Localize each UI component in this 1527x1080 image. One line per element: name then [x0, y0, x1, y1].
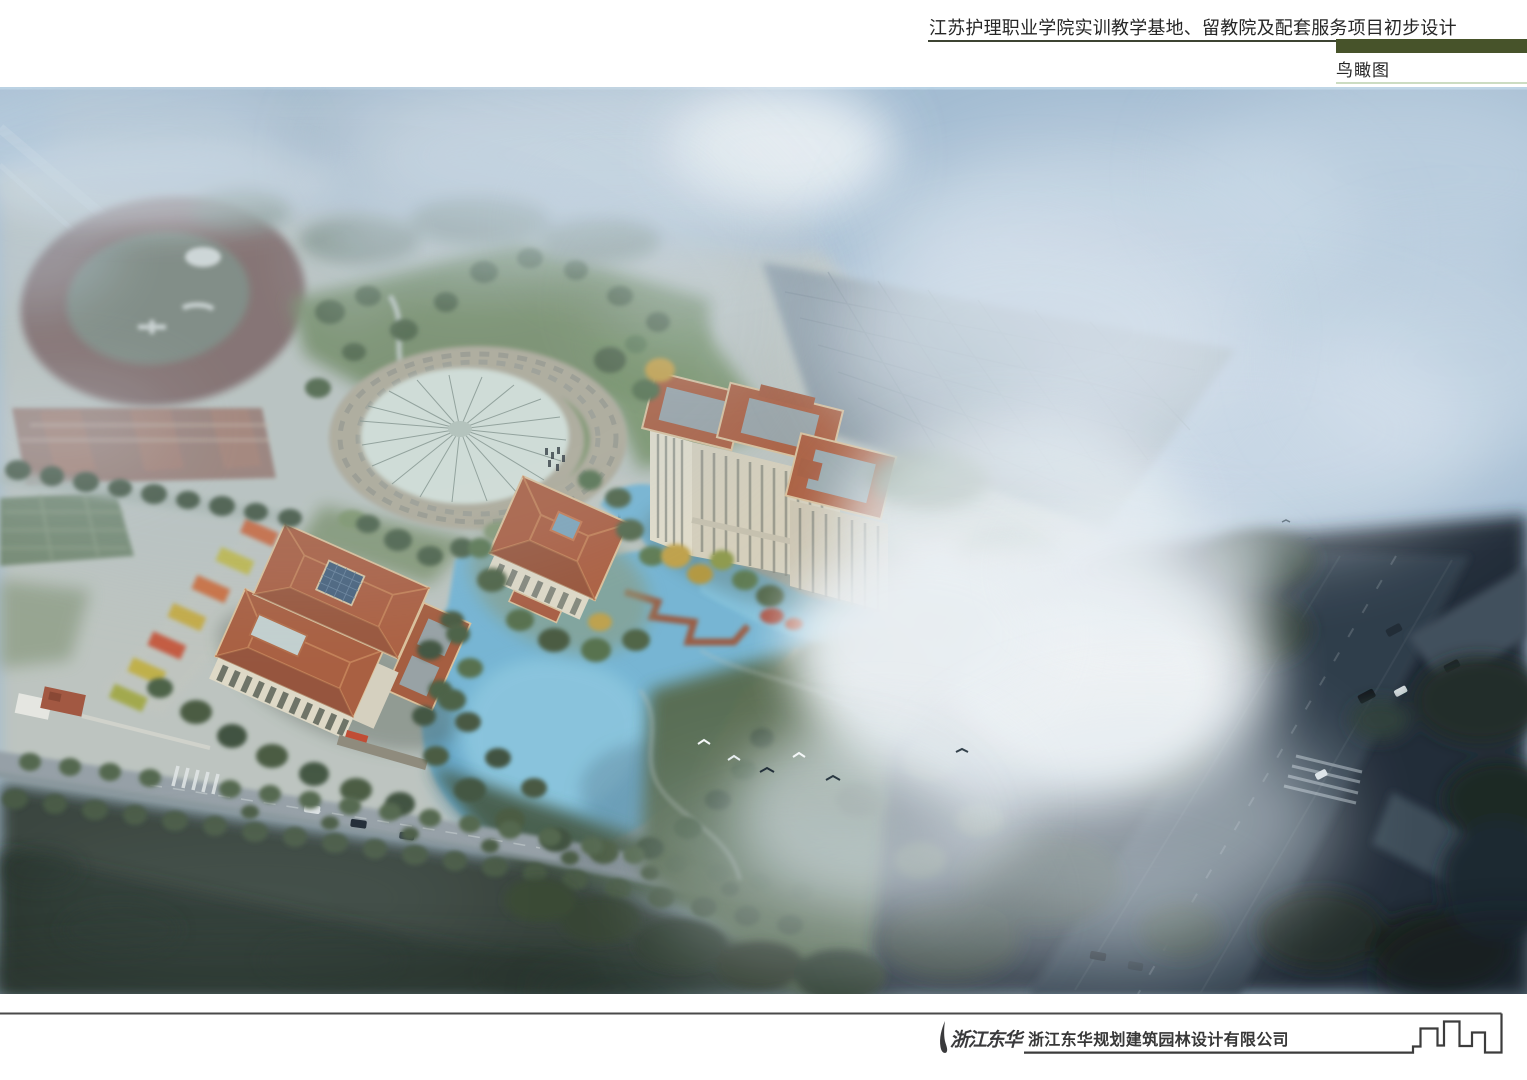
- svg-text:浙江东华规划建筑园林设计有限公司: 浙江东华规划建筑园林设计有限公司: [1028, 1030, 1289, 1049]
- svg-text:浙江东华: 浙江东华: [950, 1029, 1025, 1051]
